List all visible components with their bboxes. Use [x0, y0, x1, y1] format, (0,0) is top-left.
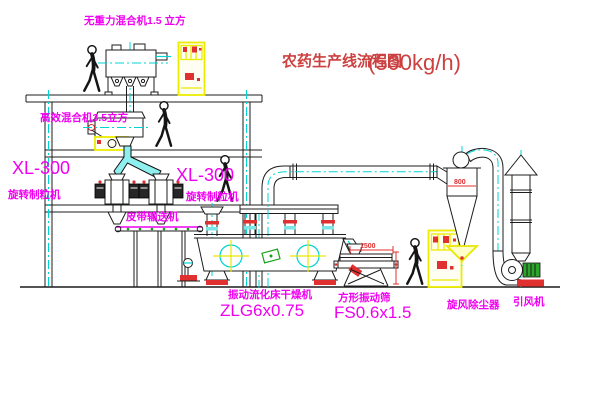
label-granulator-right-model: XL-300 — [176, 165, 234, 185]
label-dryer-model: ZLG6x0.75 — [220, 301, 304, 320]
label-belt-conveyor: 皮带输送机 — [125, 210, 179, 223]
person-figure-ground — [407, 239, 422, 284]
person-figure-mid-floor — [156, 102, 171, 146]
label-gravity-free-mixer: 无重力混合机1.5 立方 — [83, 14, 186, 27]
label-granulator-right-name: 旋转制粒机 — [185, 190, 239, 203]
label-granulator-left-model: XL-300 — [12, 158, 70, 178]
cyclone-vortex-finder — [453, 152, 469, 168]
label-sieve-model: FS0.6x1.5 — [334, 303, 412, 322]
sieve-dimension-text: 1500 — [360, 243, 376, 250]
hood-nozzle-3 — [321, 214, 335, 236]
control-cabinet-right — [429, 231, 462, 288]
label-granulator-left-name: 旋转制粒机 — [7, 188, 61, 201]
flowsheet-canvas: 1500 800 — [0, 0, 600, 403]
control-cabinet-top — [179, 43, 205, 96]
label-high-efficiency-mixer: 高效混合机3.5立方 — [40, 111, 129, 124]
vibrating-sieve: 1500 — [334, 243, 399, 286]
diagram-title-capacity: (500kg/h) — [368, 50, 461, 75]
person-figure-top-floor — [84, 46, 99, 91]
label-cyclone: 旋风除尘器 — [446, 298, 500, 311]
granulator-left — [95, 174, 139, 204]
cyclone-separator: 800 — [443, 146, 503, 266]
cyclone-dimension-text: 800 — [454, 179, 466, 186]
label-fan: 引风机 — [513, 295, 545, 308]
process-flow-diagram: 1500 800 — [0, 0, 600, 403]
stack-rain-cap — [505, 155, 537, 175]
label-dryer-name: 振动流化床干燥机 — [228, 288, 312, 301]
hood-nozzle-2 — [283, 214, 297, 236]
fan-volute — [502, 260, 523, 281]
